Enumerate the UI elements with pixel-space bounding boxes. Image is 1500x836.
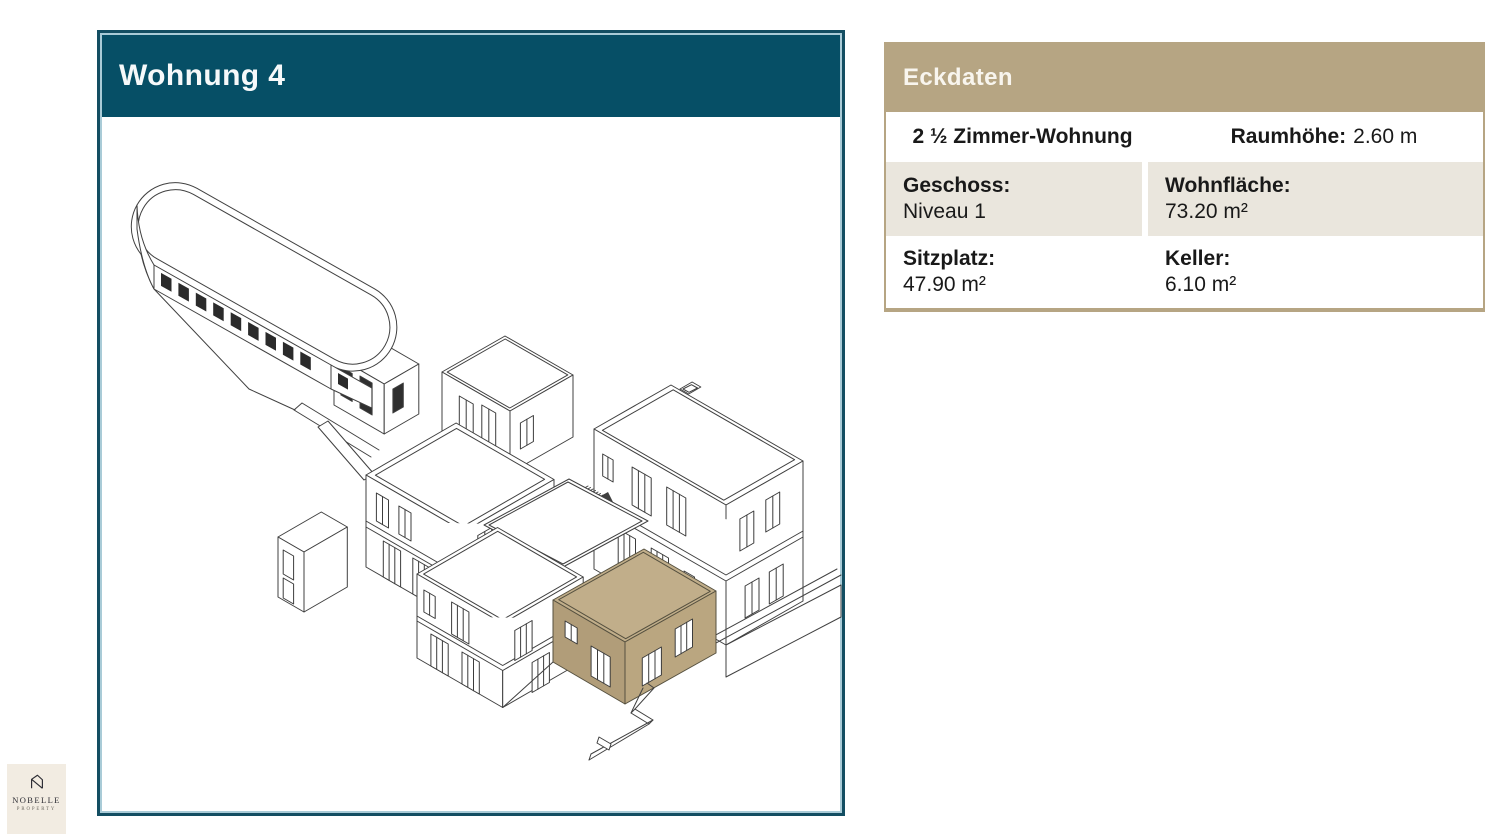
building-west-wing (278, 512, 347, 612)
apartment-panel: Wohnung 4 (97, 30, 845, 816)
terrace-label: Sitzplatz: (903, 246, 1142, 272)
floor-label: Geschoss: (903, 173, 1142, 199)
panel-header: Wohnung 4 (102, 35, 840, 117)
cell-floor: Geschoss: Niveau 1 (886, 162, 1142, 236)
drawing-area (102, 117, 840, 811)
table-row: Sitzplatz: 47.90 m² Keller: 6.10 m² (886, 236, 1483, 308)
cell-cellar: Keller: 6.10 m² (1148, 236, 1483, 308)
cell-room-height: Raumhöhe: 2.60 m (1148, 112, 1483, 162)
key-data-table: Eckdaten 2 ½ Zimmer-Wohnung Raumhöhe: 2.… (884, 42, 1485, 312)
logo-name: NOBELLE (12, 795, 61, 805)
cell-terrace: Sitzplatz: 47.90 m² (886, 236, 1142, 308)
room-height-label: Raumhöhe: (1231, 124, 1347, 150)
cell-living-area: Wohnfläche: 73.20 m² (1148, 162, 1483, 236)
cellar-value: 6.10 m² (1165, 272, 1483, 298)
living-area-label: Wohnfläche: (1165, 173, 1483, 199)
table-header-label: Eckdaten (886, 64, 1013, 92)
rooms-label: 2 ½ Zimmer-Wohnung (912, 124, 1132, 150)
table-row: Geschoss: Niveau 1 Wohnfläche: 73.20 m² (886, 162, 1483, 236)
living-area-value: 73.20 m² (1165, 199, 1483, 225)
cellar-label: Keller: (1165, 246, 1483, 272)
terrace-value: 47.90 m² (903, 272, 1142, 298)
house-monogram-icon (28, 773, 46, 791)
table-row: 2 ½ Zimmer-Wohnung Raumhöhe: 2.60 m (886, 112, 1483, 162)
cell-rooms: 2 ½ Zimmer-Wohnung (886, 112, 1142, 162)
page-title: Wohnung 4 (102, 59, 285, 93)
floor-value: Niveau 1 (903, 199, 1142, 225)
table-header: Eckdaten (886, 44, 1483, 112)
site-axonometry-drawing (102, 117, 844, 815)
logo-subtitle: PROPERTY (17, 807, 56, 812)
nobelle-logo: NOBELLE PROPERTY (7, 764, 66, 834)
room-height-value: 2.60 m (1353, 124, 1417, 150)
